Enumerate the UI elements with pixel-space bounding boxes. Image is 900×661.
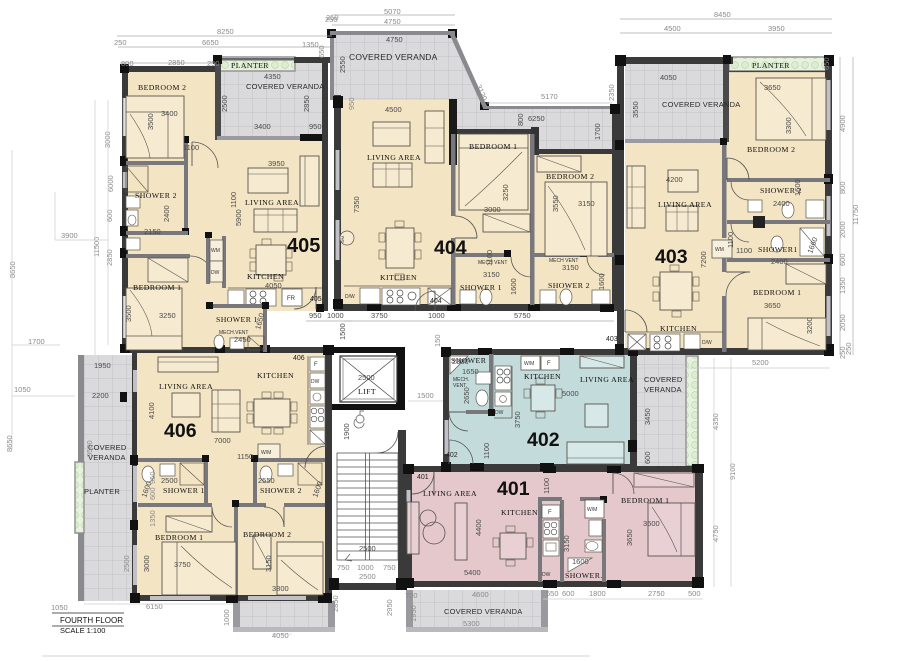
svg-text:4200: 4200	[666, 175, 683, 184]
svg-text:4050: 4050	[660, 73, 677, 82]
svg-text:BEDROOM 1: BEDROOM 1	[133, 283, 181, 292]
svg-text:D/W: D/W	[702, 340, 712, 346]
svg-text:DW: DW	[311, 379, 320, 385]
svg-text:600: 600	[643, 451, 652, 464]
svg-text:406: 406	[164, 420, 197, 442]
svg-text:2150: 2150	[144, 227, 161, 236]
svg-text:BEDROOM 2: BEDROOM 2	[747, 145, 795, 154]
svg-text:SHOWER 2: SHOWER 2	[548, 281, 590, 290]
svg-text:4750: 4750	[386, 35, 403, 44]
svg-text:2650: 2650	[462, 387, 471, 404]
svg-text:9500: 9500	[85, 440, 94, 457]
svg-text:COVERED VERANDA: COVERED VERANDA	[246, 82, 324, 91]
svg-text:3150: 3150	[483, 270, 500, 279]
svg-text:5000: 5000	[562, 389, 579, 398]
svg-text:5750: 5750	[514, 311, 531, 320]
svg-text:DW: DW	[211, 270, 220, 276]
svg-text:1000: 1000	[357, 563, 374, 572]
svg-text:2450: 2450	[234, 335, 251, 344]
svg-text:2400: 2400	[771, 257, 788, 266]
svg-text:F: F	[547, 361, 551, 367]
svg-text:404: 404	[430, 298, 442, 305]
svg-text:3750: 3750	[371, 311, 388, 320]
svg-text:1350: 1350	[838, 277, 847, 294]
svg-text:404: 404	[434, 237, 467, 259]
svg-text:4500: 4500	[385, 105, 402, 114]
svg-text:750: 750	[383, 563, 396, 572]
svg-text:3000: 3000	[142, 555, 151, 572]
svg-text:2750: 2750	[648, 589, 665, 598]
svg-text:SHOWER.: SHOWER.	[565, 571, 603, 580]
svg-text:COVERED VERANDA: COVERED VERANDA	[349, 52, 438, 62]
svg-text:1050: 1050	[51, 603, 68, 612]
svg-text:1900: 1900	[342, 423, 351, 440]
svg-text:1100: 1100	[183, 143, 199, 152]
svg-text:3750: 3750	[174, 560, 191, 569]
svg-text:5200: 5200	[752, 358, 769, 367]
svg-text:COVERED VERANDA: COVERED VERANDA	[662, 100, 740, 109]
svg-text:401: 401	[497, 478, 530, 500]
svg-text:SHOWER 2: SHOWER 2	[135, 191, 177, 200]
svg-text:SCALE 1:100: SCALE 1:100	[60, 626, 105, 635]
svg-text:3450: 3450	[643, 408, 652, 425]
svg-text:PLANTER: PLANTER	[752, 61, 790, 70]
svg-text:2850: 2850	[105, 249, 114, 266]
svg-text:950: 950	[309, 311, 322, 320]
svg-text:3000: 3000	[103, 131, 112, 148]
svg-text:F: F	[548, 510, 552, 516]
svg-text:402: 402	[527, 429, 560, 451]
svg-text:8250: 8250	[217, 27, 234, 36]
svg-text:3650: 3650	[625, 529, 634, 546]
svg-text:KITCHEN: KITCHEN	[247, 272, 284, 281]
svg-text:3600: 3600	[643, 519, 660, 528]
svg-text:3550: 3550	[631, 101, 640, 118]
svg-text:250: 250	[114, 38, 127, 47]
svg-text:FR: FR	[287, 296, 296, 302]
svg-text:650: 650	[822, 57, 831, 70]
svg-text:1600: 1600	[509, 278, 518, 295]
svg-text:6650: 6650	[202, 38, 219, 47]
svg-text:BEDROOM 1: BEDROOM 1	[621, 496, 669, 505]
svg-text:650: 650	[317, 45, 326, 58]
svg-text:1000: 1000	[327, 311, 344, 320]
svg-text:2500: 2500	[220, 95, 229, 112]
svg-text:3000: 3000	[484, 205, 501, 214]
svg-text:406: 406	[293, 355, 305, 362]
svg-text:1950: 1950	[94, 361, 111, 370]
svg-text:6000: 6000	[106, 175, 115, 192]
svg-text:3950: 3950	[768, 24, 785, 33]
svg-text:500: 500	[688, 589, 701, 598]
svg-text:2050: 2050	[838, 314, 847, 331]
svg-text:800: 800	[121, 59, 134, 68]
svg-text:700: 700	[405, 591, 418, 600]
svg-text:2850: 2850	[168, 58, 185, 67]
svg-text:1100: 1100	[229, 192, 238, 208]
svg-text:8650: 8650	[5, 435, 14, 452]
svg-text:3750: 3750	[513, 411, 522, 428]
svg-text:150: 150	[433, 334, 442, 347]
svg-text:3200: 3200	[805, 317, 814, 334]
svg-text:WM: WM	[340, 236, 345, 243]
svg-text:2500: 2500	[359, 572, 376, 581]
svg-text:5170: 5170	[541, 92, 558, 101]
svg-text:PLANTER: PLANTER	[231, 61, 269, 70]
svg-text:3500: 3500	[146, 113, 155, 130]
svg-text:800: 800	[838, 181, 847, 194]
svg-text:DW: DW	[542, 572, 551, 578]
svg-text:4350: 4350	[711, 413, 720, 430]
svg-text:1600: 1600	[597, 273, 606, 290]
svg-text:4500: 4500	[664, 24, 681, 33]
svg-text:2000: 2000	[838, 221, 847, 238]
svg-text:950: 950	[309, 122, 322, 131]
svg-text:KITCHEN: KITCHEN	[257, 371, 294, 380]
svg-text:3400: 3400	[254, 122, 271, 131]
svg-text:3300: 3300	[784, 117, 793, 134]
svg-text:1000: 1000	[428, 311, 445, 320]
svg-text:1600: 1600	[572, 557, 589, 566]
svg-text:1600: 1600	[793, 179, 802, 196]
svg-text:5900: 5900	[234, 209, 243, 226]
svg-text:SHOWER 1: SHOWER 1	[460, 283, 502, 292]
svg-text:1150: 1150	[237, 452, 253, 461]
svg-text:COVERED VERANDA: COVERED VERANDA	[444, 607, 522, 616]
svg-text:SHOWER 2: SHOWER 2	[260, 486, 302, 495]
svg-text:WM: WM	[211, 248, 220, 254]
svg-text:8650: 8650	[8, 261, 17, 278]
svg-text:8450: 8450	[714, 10, 731, 19]
svg-text:1650: 1650	[462, 367, 479, 376]
svg-text:BEDROOM 2: BEDROOM 2	[138, 83, 186, 92]
svg-text:7000: 7000	[214, 436, 231, 445]
svg-text:2400: 2400	[773, 199, 790, 208]
svg-text:BEDROOM 2: BEDROOM 2	[546, 172, 594, 181]
svg-text:3150: 3150	[562, 263, 579, 272]
svg-text:LIVING AREA: LIVING AREA	[423, 489, 477, 498]
svg-text:W/M: W/M	[524, 361, 534, 367]
svg-text:LIVING AREA: LIVING AREA	[658, 200, 712, 209]
svg-text:600: 600	[562, 589, 575, 598]
svg-text:3650: 3650	[764, 83, 781, 92]
svg-text:3900: 3900	[61, 231, 78, 240]
svg-text:6250: 6250	[528, 114, 545, 123]
svg-text:KITCHEN: KITCHEN	[501, 508, 538, 517]
svg-text:1700: 1700	[593, 123, 602, 140]
svg-text:7350: 7350	[352, 196, 361, 213]
svg-text:LIVING AREA: LIVING AREA	[245, 198, 299, 207]
svg-text:401: 401	[417, 474, 429, 481]
svg-text:3550: 3550	[551, 195, 560, 212]
svg-text:405: 405	[287, 235, 320, 257]
svg-text:COVERED: COVERED	[644, 375, 683, 384]
svg-text:4100: 4100	[147, 402, 156, 419]
svg-text:KITCHEN: KITCHEN	[660, 324, 697, 333]
svg-text:1100: 1100	[726, 232, 735, 248]
svg-text:550: 550	[546, 589, 559, 598]
svg-text:3250: 3250	[501, 184, 510, 201]
svg-text:BEDROOM 1: BEDROOM 1	[753, 288, 801, 297]
svg-text:VERANDA: VERANDA	[644, 385, 682, 394]
svg-text:405: 405	[310, 296, 322, 303]
svg-text:KITCHEN: KITCHEN	[380, 273, 417, 282]
svg-text:1100: 1100	[482, 443, 491, 459]
svg-text:3400: 3400	[161, 109, 178, 118]
svg-text:LIVING AREA: LIVING AREA	[159, 382, 213, 391]
svg-text:250: 250	[326, 13, 339, 22]
svg-text:250: 250	[207, 59, 220, 68]
svg-text:1100: 1100	[542, 478, 551, 494]
svg-text:3650: 3650	[764, 301, 781, 310]
svg-text:3800: 3800	[272, 584, 289, 593]
svg-text:2400: 2400	[162, 205, 171, 222]
svg-text:2350: 2350	[607, 84, 616, 101]
svg-text:LIFT: LIFT	[358, 387, 376, 396]
svg-text:600: 600	[838, 253, 847, 266]
svg-text:1100: 1100	[485, 250, 494, 266]
svg-text:1500: 1500	[338, 323, 347, 340]
svg-text:2550: 2550	[338, 56, 347, 73]
svg-text:D/W: D/W	[345, 294, 355, 300]
svg-text:PLANTER: PLANTER	[84, 487, 120, 496]
svg-text:4400: 4400	[474, 519, 483, 536]
svg-text:LIVING AREA: LIVING AREA	[580, 375, 634, 384]
svg-text:2850: 2850	[302, 95, 311, 112]
svg-text:SHOWER 1: SHOWER 1	[163, 486, 205, 495]
svg-text:F: F	[314, 362, 318, 368]
svg-text:4750: 4750	[711, 525, 720, 542]
svg-text:KITCHEN: KITCHEN	[524, 372, 561, 381]
svg-text:600: 600	[105, 209, 114, 222]
svg-text:4050: 4050	[265, 281, 282, 290]
svg-text:4900: 4900	[838, 115, 847, 132]
svg-text:7200: 7200	[699, 251, 708, 268]
svg-text:402: 402	[446, 452, 458, 459]
svg-text:3500: 3500	[124, 305, 133, 322]
svg-text:3950: 3950	[268, 159, 285, 168]
svg-text:3150: 3150	[578, 199, 595, 208]
svg-text:3150: 3150	[264, 555, 273, 572]
svg-text:5300: 5300	[463, 619, 480, 628]
svg-text:1050: 1050	[14, 385, 31, 394]
svg-text:950: 950	[347, 97, 356, 110]
svg-text:3250: 3250	[159, 311, 176, 320]
svg-text:6150: 6150	[146, 602, 163, 611]
svg-text:SHOWER 1: SHOWER 1	[216, 315, 258, 324]
svg-text:600: 600	[148, 487, 157, 500]
svg-text:2300: 2300	[452, 357, 469, 366]
svg-text:2500: 2500	[358, 373, 375, 382]
svg-text:750: 750	[337, 563, 350, 572]
svg-text:2950: 2950	[385, 599, 394, 616]
svg-text:2500: 2500	[359, 544, 376, 553]
svg-text:4350: 4350	[264, 72, 281, 81]
svg-text:BEDROOM 1: BEDROOM 1	[469, 142, 517, 151]
svg-text:1100: 1100	[736, 246, 752, 255]
svg-text:9100: 9100	[728, 463, 737, 480]
svg-text:1500: 1500	[417, 391, 434, 400]
svg-text:BEDROOM 2: BEDROOM 2	[243, 530, 291, 539]
svg-text:4600: 4600	[472, 590, 489, 599]
svg-text:11750: 11750	[851, 205, 860, 225]
svg-text:2200: 2200	[92, 391, 109, 400]
svg-text:5400: 5400	[464, 568, 481, 577]
svg-text:BEDROOM 1: BEDROOM 1	[155, 533, 203, 542]
svg-text:DW: DW	[495, 410, 504, 416]
svg-text:W/M: W/M	[587, 507, 597, 513]
svg-text:W/M: W/M	[261, 450, 271, 456]
svg-text:2500: 2500	[161, 476, 178, 485]
svg-text:1950: 1950	[409, 605, 418, 622]
svg-text:SHOWER1: SHOWER1	[758, 245, 798, 254]
svg-text:FOURTH FLOOR: FOURTH FLOOR	[60, 616, 123, 625]
svg-text:1350: 1350	[148, 510, 157, 527]
svg-text:250: 250	[844, 342, 853, 355]
svg-text:1000: 1000	[222, 609, 231, 626]
svg-text:950: 950	[148, 471, 157, 484]
svg-text:403: 403	[606, 336, 618, 343]
svg-text:800: 800	[516, 113, 525, 126]
svg-text:4050: 4050	[272, 631, 289, 640]
svg-text:1800: 1800	[589, 589, 606, 598]
svg-text:3150: 3150	[562, 535, 571, 552]
svg-text:2850: 2850	[331, 595, 340, 612]
svg-text:403: 403	[655, 246, 688, 268]
svg-text:2550: 2550	[258, 476, 275, 485]
svg-text:WM: WM	[715, 247, 724, 253]
svg-text:LIVING AREA: LIVING AREA	[367, 153, 421, 162]
svg-text:2500: 2500	[122, 555, 131, 572]
